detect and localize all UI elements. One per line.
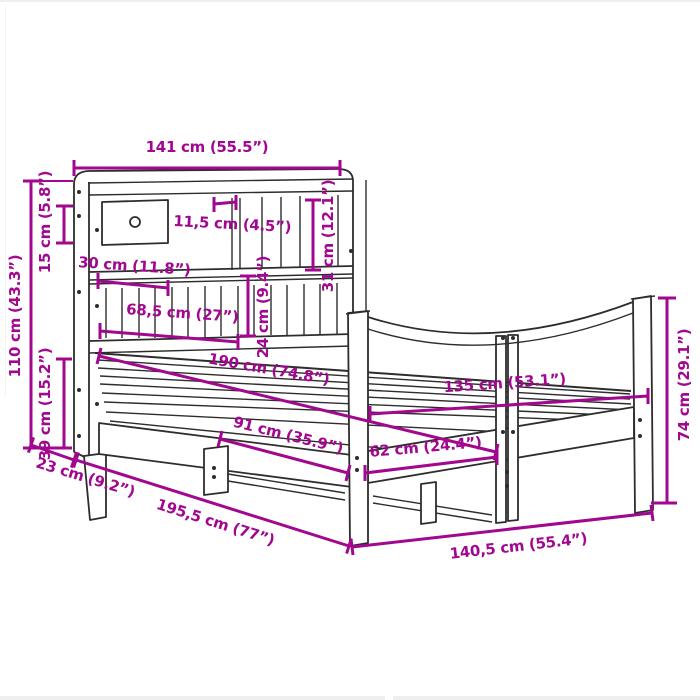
headboard-drawer: [102, 200, 168, 245]
dim-upper-shelf-height-label: 31 cm (12.1”): [319, 180, 337, 293]
dim-base-height: 39 cm (15.2”): [36, 348, 72, 461]
dimension-diagram: 141 cm (55.5”) 15 cm (5.8”) 110 cm (43.3…: [0, 0, 700, 700]
footboard-near-post: [348, 311, 368, 546]
dim-footboard-height-label: 74 cm (29.1”): [675, 329, 693, 442]
front-left-leg: [204, 446, 228, 495]
dim-headboard-top-offset-label: 15 cm (5.8”): [36, 171, 54, 273]
footboard-center-slat: [508, 335, 518, 521]
dim-headboard-top-offset: 15 cm (5.8”): [36, 171, 73, 273]
dim-slot-width: 11,5 cm (4.5”): [173, 195, 292, 236]
dim-shelf-section-width-label: 68,5 cm (27”): [126, 300, 240, 326]
dim-lower-shelf-height: 24 cm (9.4”): [240, 256, 272, 358]
dim-footboard-height: 74 cm (29.1”): [651, 298, 693, 503]
dim-compartment-width-label: 30 cm (11.8”): [78, 253, 192, 279]
center-support-leg: [421, 482, 436, 524]
dim-shelf-section-width: 68,5 cm (27”): [100, 300, 239, 350]
footboard-center-slat: [496, 336, 506, 523]
footboard-curved-rail: [368, 302, 633, 333]
bed-line-drawing: [74, 169, 655, 546]
dim-lower-shelf-height-label: 24 cm (9.4”): [254, 256, 272, 358]
dim-base-height-label: 39 cm (15.2”): [36, 348, 54, 461]
dim-slot-width-label: 11,5 cm (4.5”): [173, 212, 292, 236]
dim-headboard-width-label: 141 cm (55.5”): [146, 138, 269, 156]
dim-total-height-label: 110 cm (43.3”): [6, 255, 24, 378]
footboard-far-post: [633, 296, 653, 513]
dim-compartment-width: 30 cm (11.8”): [78, 253, 192, 296]
